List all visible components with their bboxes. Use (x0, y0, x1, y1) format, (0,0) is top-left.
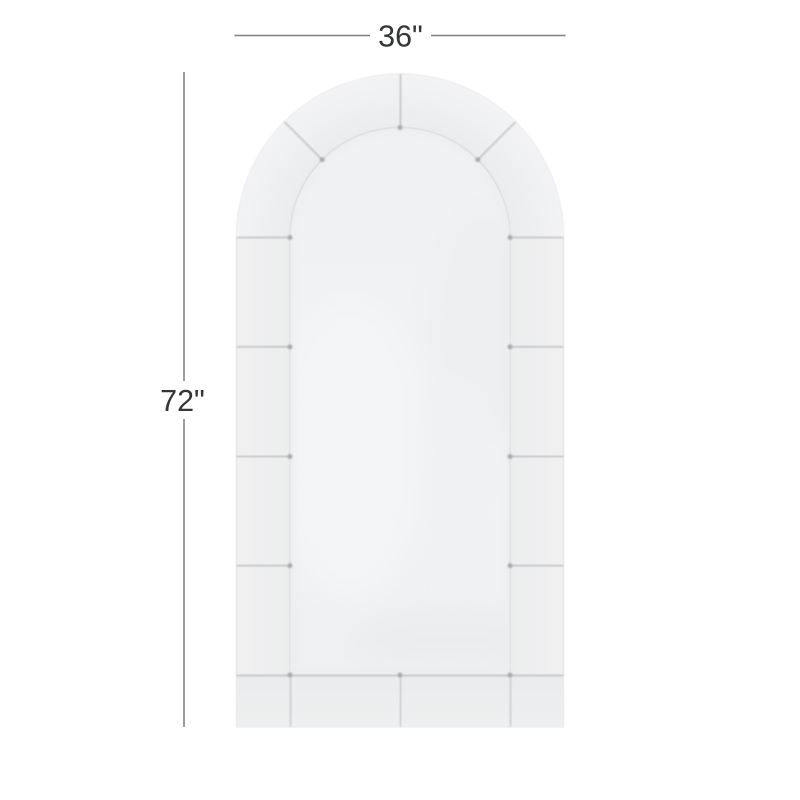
svg-text:36": 36" (378, 20, 423, 54)
svg-text:72": 72" (160, 384, 205, 418)
